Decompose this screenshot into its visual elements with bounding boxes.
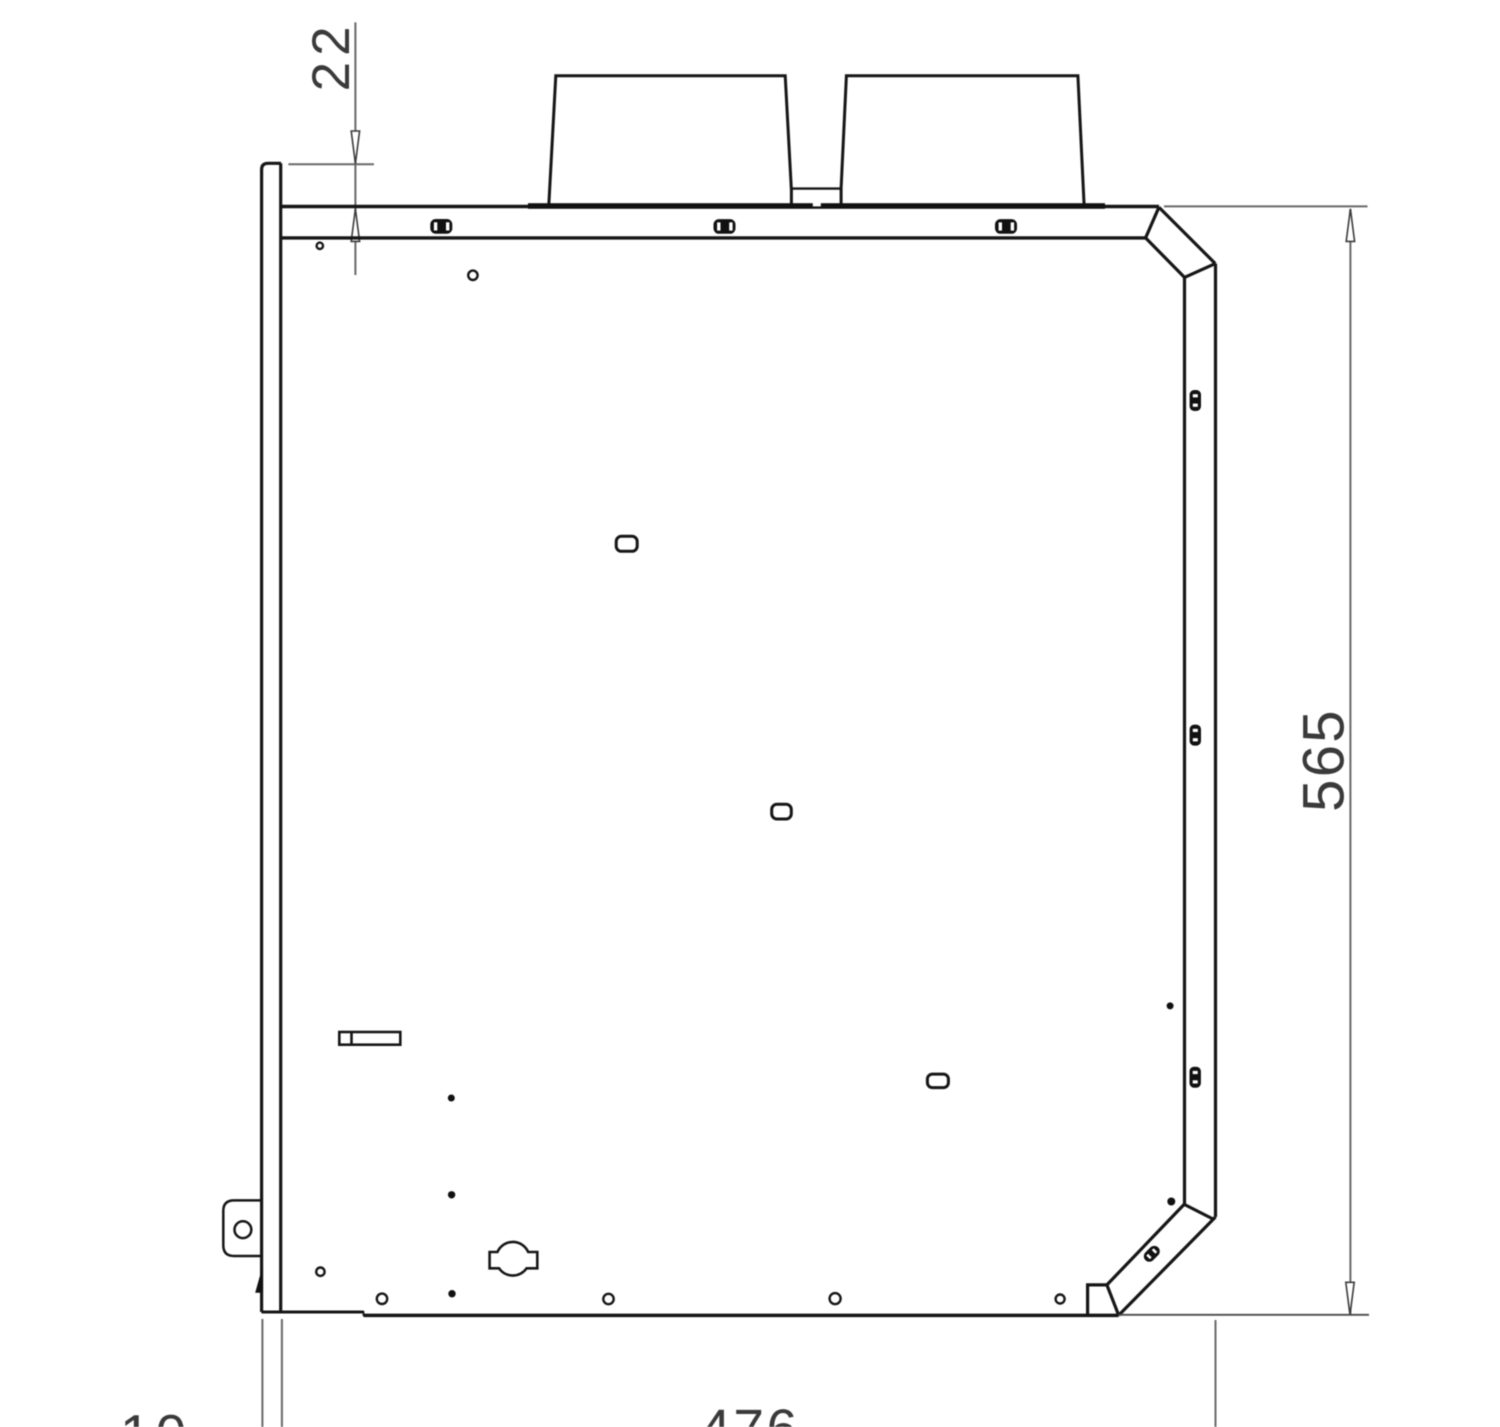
- svg-text:10: 10: [120, 1403, 191, 1427]
- svg-text:22: 22: [302, 20, 361, 91]
- svg-text:565: 565: [1292, 708, 1357, 812]
- svg-text:476: 476: [700, 1398, 799, 1427]
